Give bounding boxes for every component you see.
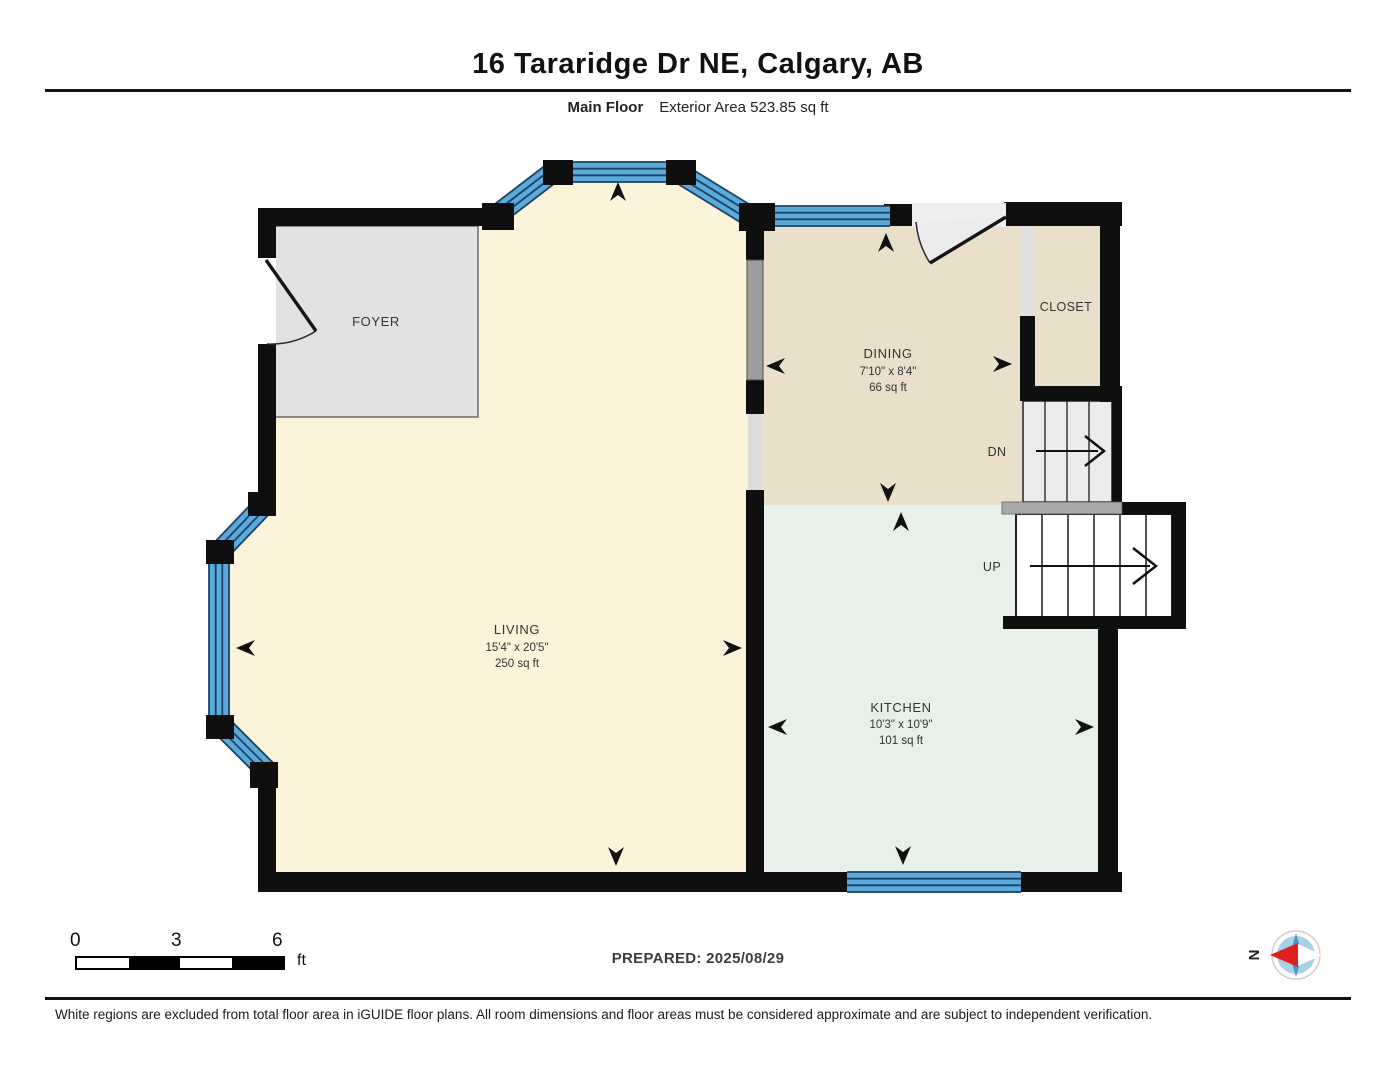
footer-divider (45, 997, 1351, 1000)
north-label: N (1246, 950, 1263, 961)
window-dining (766, 206, 890, 226)
closet-door-opening (1022, 226, 1034, 316)
disclaimer-text: White regions are excluded from total fl… (55, 1007, 1152, 1022)
scale-tick-0: 0 (70, 930, 81, 952)
compass-icon: N (1240, 920, 1336, 990)
dining-area-label: 66 sq ft (869, 382, 908, 394)
stairs-up-label: UP (983, 560, 1001, 574)
stair-landing-edge (1002, 502, 1122, 514)
stairs-up (1016, 514, 1172, 618)
window-bay-left-center (209, 548, 229, 727)
wall-opening-living-dining (748, 414, 762, 490)
railing-half-wall (747, 260, 763, 380)
stairs-down (1023, 401, 1112, 502)
prepared-date: PREPARED: 2025/08/29 (0, 950, 1396, 967)
foyer-label: FOYER (352, 314, 400, 329)
living-area-label: 250 sq ft (495, 658, 540, 670)
scale-tick-3: 3 (171, 930, 182, 952)
floor-plan: FOYER DINING 7'10" x 8'4" 66 sq ft LIVIN… (0, 0, 1396, 1080)
kitchen-area-label: 101 sq ft (879, 735, 924, 747)
stairs-down-label: DN (988, 445, 1007, 459)
living-label: LIVING (494, 622, 540, 637)
closet-label: CLOSET (1040, 300, 1092, 314)
scale-tick-6: 6 (272, 930, 283, 952)
kitchen-label: KITCHEN (870, 700, 931, 715)
dining-dimensions: 7'10" x 8'4" (860, 366, 917, 378)
living-dimensions: 15'4" x 20'5" (485, 642, 548, 654)
dining-label: DINING (863, 346, 912, 361)
window-kitchen-bottom (847, 872, 1021, 892)
kitchen-dimensions: 10'3" x 10'9" (869, 719, 932, 731)
